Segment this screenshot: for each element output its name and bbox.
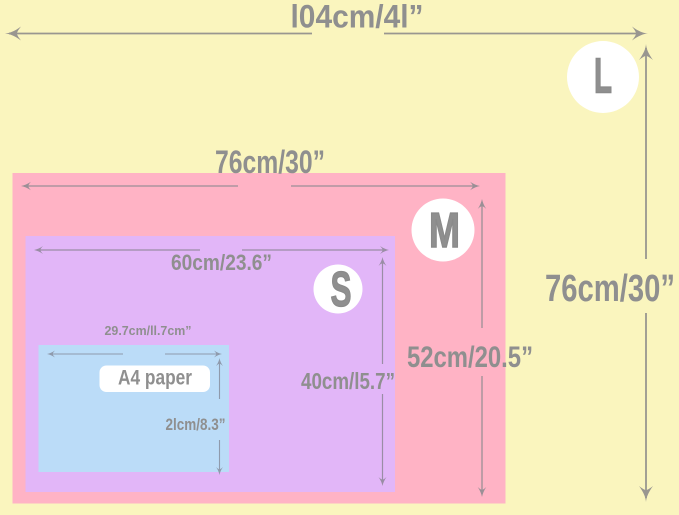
svg-text:52cm/20.5”: 52cm/20.5” — [407, 341, 533, 374]
svg-text:40cm/l5.7”: 40cm/l5.7” — [301, 368, 395, 394]
svg-text:l04cm/4l”: l04cm/4l” — [291, 0, 424, 35]
svg-text:2lcm/8.3”: 2lcm/8.3” — [166, 415, 226, 434]
svg-text:76cm/30”: 76cm/30” — [215, 144, 325, 180]
svg-text:S: S — [331, 263, 352, 317]
svg-text:L: L — [594, 50, 612, 104]
svg-text:M: M — [429, 204, 460, 258]
svg-text:76cm/30”: 76cm/30” — [545, 268, 675, 310]
svg-text:A4 paper: A4 paper — [118, 367, 192, 390]
svg-text:29.7cm/ll.7cm”: 29.7cm/ll.7cm” — [105, 324, 192, 338]
svg-text:60cm/23.6”: 60cm/23.6” — [171, 250, 272, 275]
